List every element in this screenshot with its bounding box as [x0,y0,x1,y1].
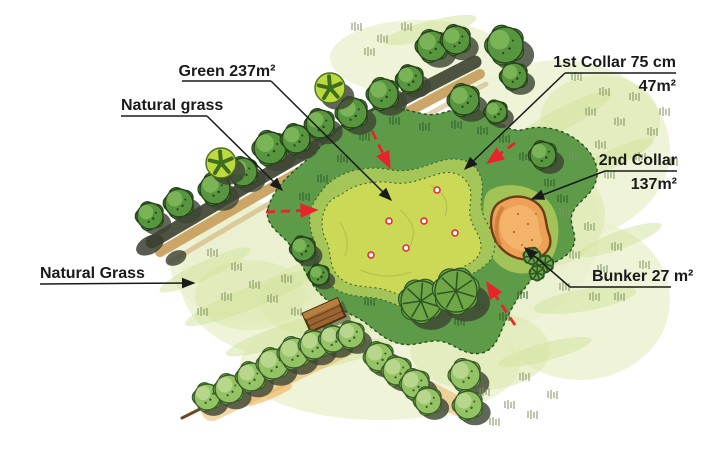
natural-grass-top-text: Natural grass [121,97,223,114]
hole-position-dot [368,252,374,258]
grass-tuft-icon [548,390,557,399]
first-collar-text-line2: 47m² [639,78,676,95]
grass-tuft-icon [528,410,537,419]
hole-position-dot [403,245,409,251]
first-collar-text-line1: 1st Collar 75 cm [553,54,676,71]
natural-grass-bottom-text: Natural Grass [40,265,145,282]
grass-tuft-icon [352,22,361,31]
green-label-text: Green 237m² [179,63,276,80]
golf-green-plan: Green 237m² Natural grass 1st Collar 75 … [0,0,722,468]
grass-tuft-icon [505,400,514,409]
hole-position-dot [434,187,440,193]
hole-position-dot [452,230,458,236]
second-collar-text-line2: 137m² [631,176,677,193]
bunker-label-text: Bunker 27 m² [592,268,693,285]
grass-tuft-icon [660,107,669,116]
second-collar-text-line1: 2nd Collar [599,152,677,169]
grass-tuft-icon [490,417,499,426]
green-plan-svg: Green 237m² Natural grass 1st Collar 75 … [0,0,722,468]
palm-tree-icon [529,265,545,281]
hole-position-dot [386,218,392,224]
hole-position-dot [421,218,427,224]
